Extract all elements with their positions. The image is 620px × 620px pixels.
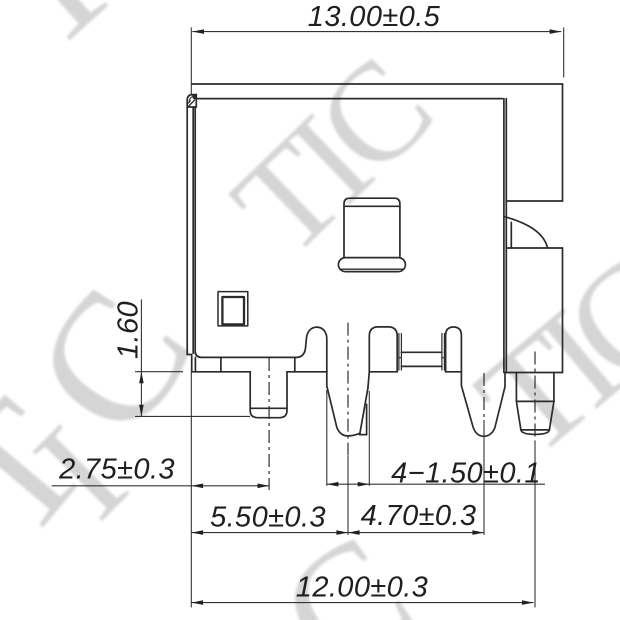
svg-text:4−1.50±0.1: 4−1.50±0.1: [391, 458, 541, 490]
svg-text:12.00±0.3: 12.00±0.3: [296, 572, 428, 604]
svg-text:2.75±0.3: 2.75±0.3: [58, 454, 175, 486]
svg-text:13.00±0.5: 13.00±0.5: [308, 1, 441, 33]
svg-text:5.50±0.3: 5.50±0.3: [210, 502, 326, 534]
svg-text:1.60: 1.60: [113, 301, 145, 359]
svg-text:4.70±0.3: 4.70±0.3: [361, 500, 477, 532]
